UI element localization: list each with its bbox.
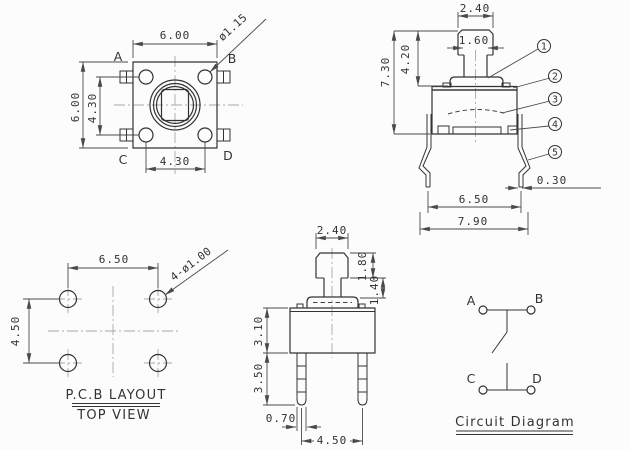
pin-label-b: B [228,51,237,66]
pcb-caption-line1: P.C.B LAYOUT [66,388,167,403]
callout-3-number: 3 [552,95,558,106]
terminal-label-b: B [535,291,544,306]
dim-front-lead-width: 0.70 [266,412,297,425]
base-inner-details [438,126,517,134]
side-view-dimensions: 2.40 1.60 4.20 7.30 0.30 6.50 7.90 [379,2,601,235]
circuit-caption-text: Circuit Diagram [455,415,575,430]
circuit-terminal-labels: A B C D [467,291,544,386]
dim-left-height: 6.00 [69,92,82,123]
dim-pin-row-span: 4.30 [86,93,99,124]
dim-stem-width: 1.60 [459,34,490,47]
dim-front-body-height: 3.10 [252,316,265,347]
dim-lead-thickness: 0.30 [537,174,568,187]
technical-drawing-canvas: 6.00 6.00 4.30 4.30 ø1.15 A B C D [0,0,629,450]
pcb-caption: P.C.B LAYOUT TOP VIEW [66,388,167,423]
dim-cap-width: 2.40 [460,2,491,15]
callout-1-number: 1 [541,42,547,53]
pin-label-d: D [223,148,233,163]
dim-total-height: 7.30 [379,57,392,88]
dim-stem-height: 4.20 [399,44,412,75]
hole-note: 4-ø1.00 [168,245,214,284]
dim-overall-width: 7.90 [458,215,489,228]
circuit-diagram-view: A B C D Circuit Diagram [455,291,575,435]
dim-front-lead-span: 4.50 [317,434,348,447]
terminal-label-d: D [532,371,542,386]
circuit-wires [487,310,527,390]
pin-label-c: C [119,152,128,167]
top-view: 6.00 6.00 4.30 4.30 ø1.15 A B C D [69,11,266,174]
tact-switch-dimension-drawing: 6.00 6.00 4.30 4.30 ø1.15 A B C D [0,0,629,450]
pcb-caption-line2: TOP VIEW [76,408,151,423]
callout-4-number: 4 [552,120,558,131]
front-view-dimensions: 2.40 1.80 1.40 3.10 3.50 0.70 4. [252,224,386,447]
front-leads [297,353,367,405]
dim-front-lead-length: 3.50 [252,363,265,394]
pcb-layout-view: 6.50 4.50 4-ø1.00 P.C.B LAYOUT TOP VIEW [9,245,228,423]
terminal-label-c: C [467,371,476,386]
terminal-label-a: A [467,293,476,308]
dim-front-cap-width: 2.40 [317,224,348,237]
callout-2-number: 2 [552,72,558,83]
dim-hole-span-h: 6.50 [99,253,130,266]
pcb-dimensions: 6.50 4.50 4-ø1.00 [9,245,228,363]
dim-hole-span-v: 4.50 [9,316,22,347]
front-view: 2.40 1.80 1.40 3.10 3.50 0.70 4. [252,224,386,447]
circuit-caption: Circuit Diagram [455,415,575,435]
part-callouts: 1 2 3 4 5 [488,40,562,161]
plunger-collar [450,77,503,86]
pin-label-a: A [114,49,123,64]
side-elevation-view: 2.40 1.60 4.20 7.30 0.30 6.50 7.90 [379,2,601,235]
dim-front-stem-height: 1.40 [368,275,381,306]
dome-contact-dashed [448,110,507,115]
bent-leads [419,114,530,187]
dim-lead-tip-span: 6.50 [459,193,490,206]
top-view-dimensions: 6.00 6.00 4.30 4.30 ø1.15 [69,11,266,173]
pcb-centerlines [48,285,180,377]
front-body [290,308,375,353]
dim-top-width: 6.00 [160,29,191,42]
callout-5-number: 5 [552,148,558,159]
dim-pin-col-span: 4.30 [160,155,191,168]
